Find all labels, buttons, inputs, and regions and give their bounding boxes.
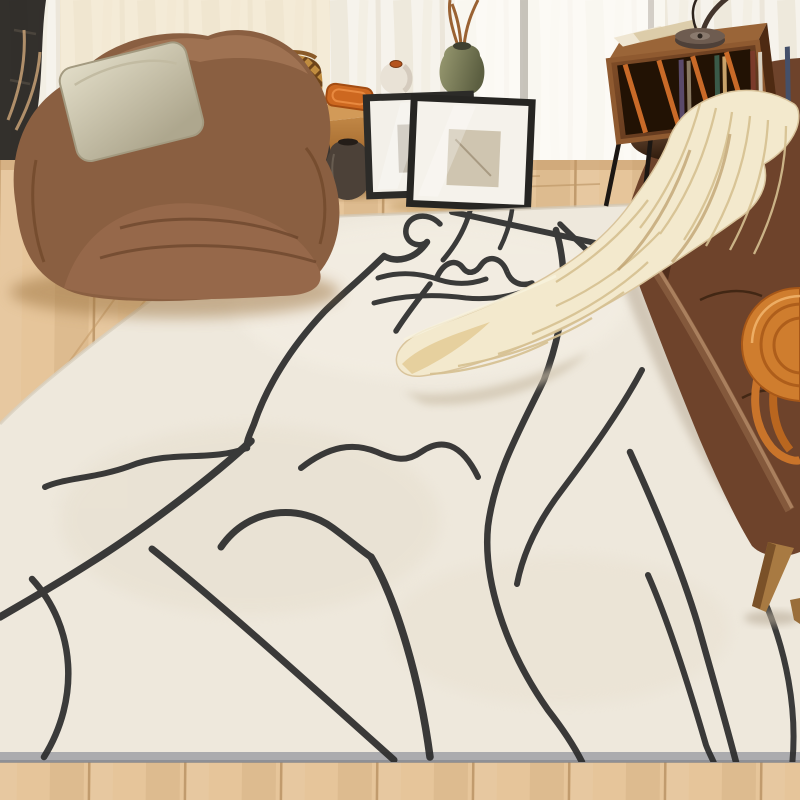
green-vase-mouth xyxy=(453,42,471,50)
picture-frame-front xyxy=(410,98,533,209)
picture-frames xyxy=(366,94,532,213)
green-vase-body xyxy=(440,44,485,96)
living-room-photo xyxy=(0,0,800,800)
white-vase-mouth xyxy=(390,61,402,68)
lamp-pivot xyxy=(698,34,703,39)
pot-large-mouth xyxy=(338,139,358,146)
rug-edge-shadow xyxy=(0,760,800,763)
leg-shadow xyxy=(744,611,800,625)
